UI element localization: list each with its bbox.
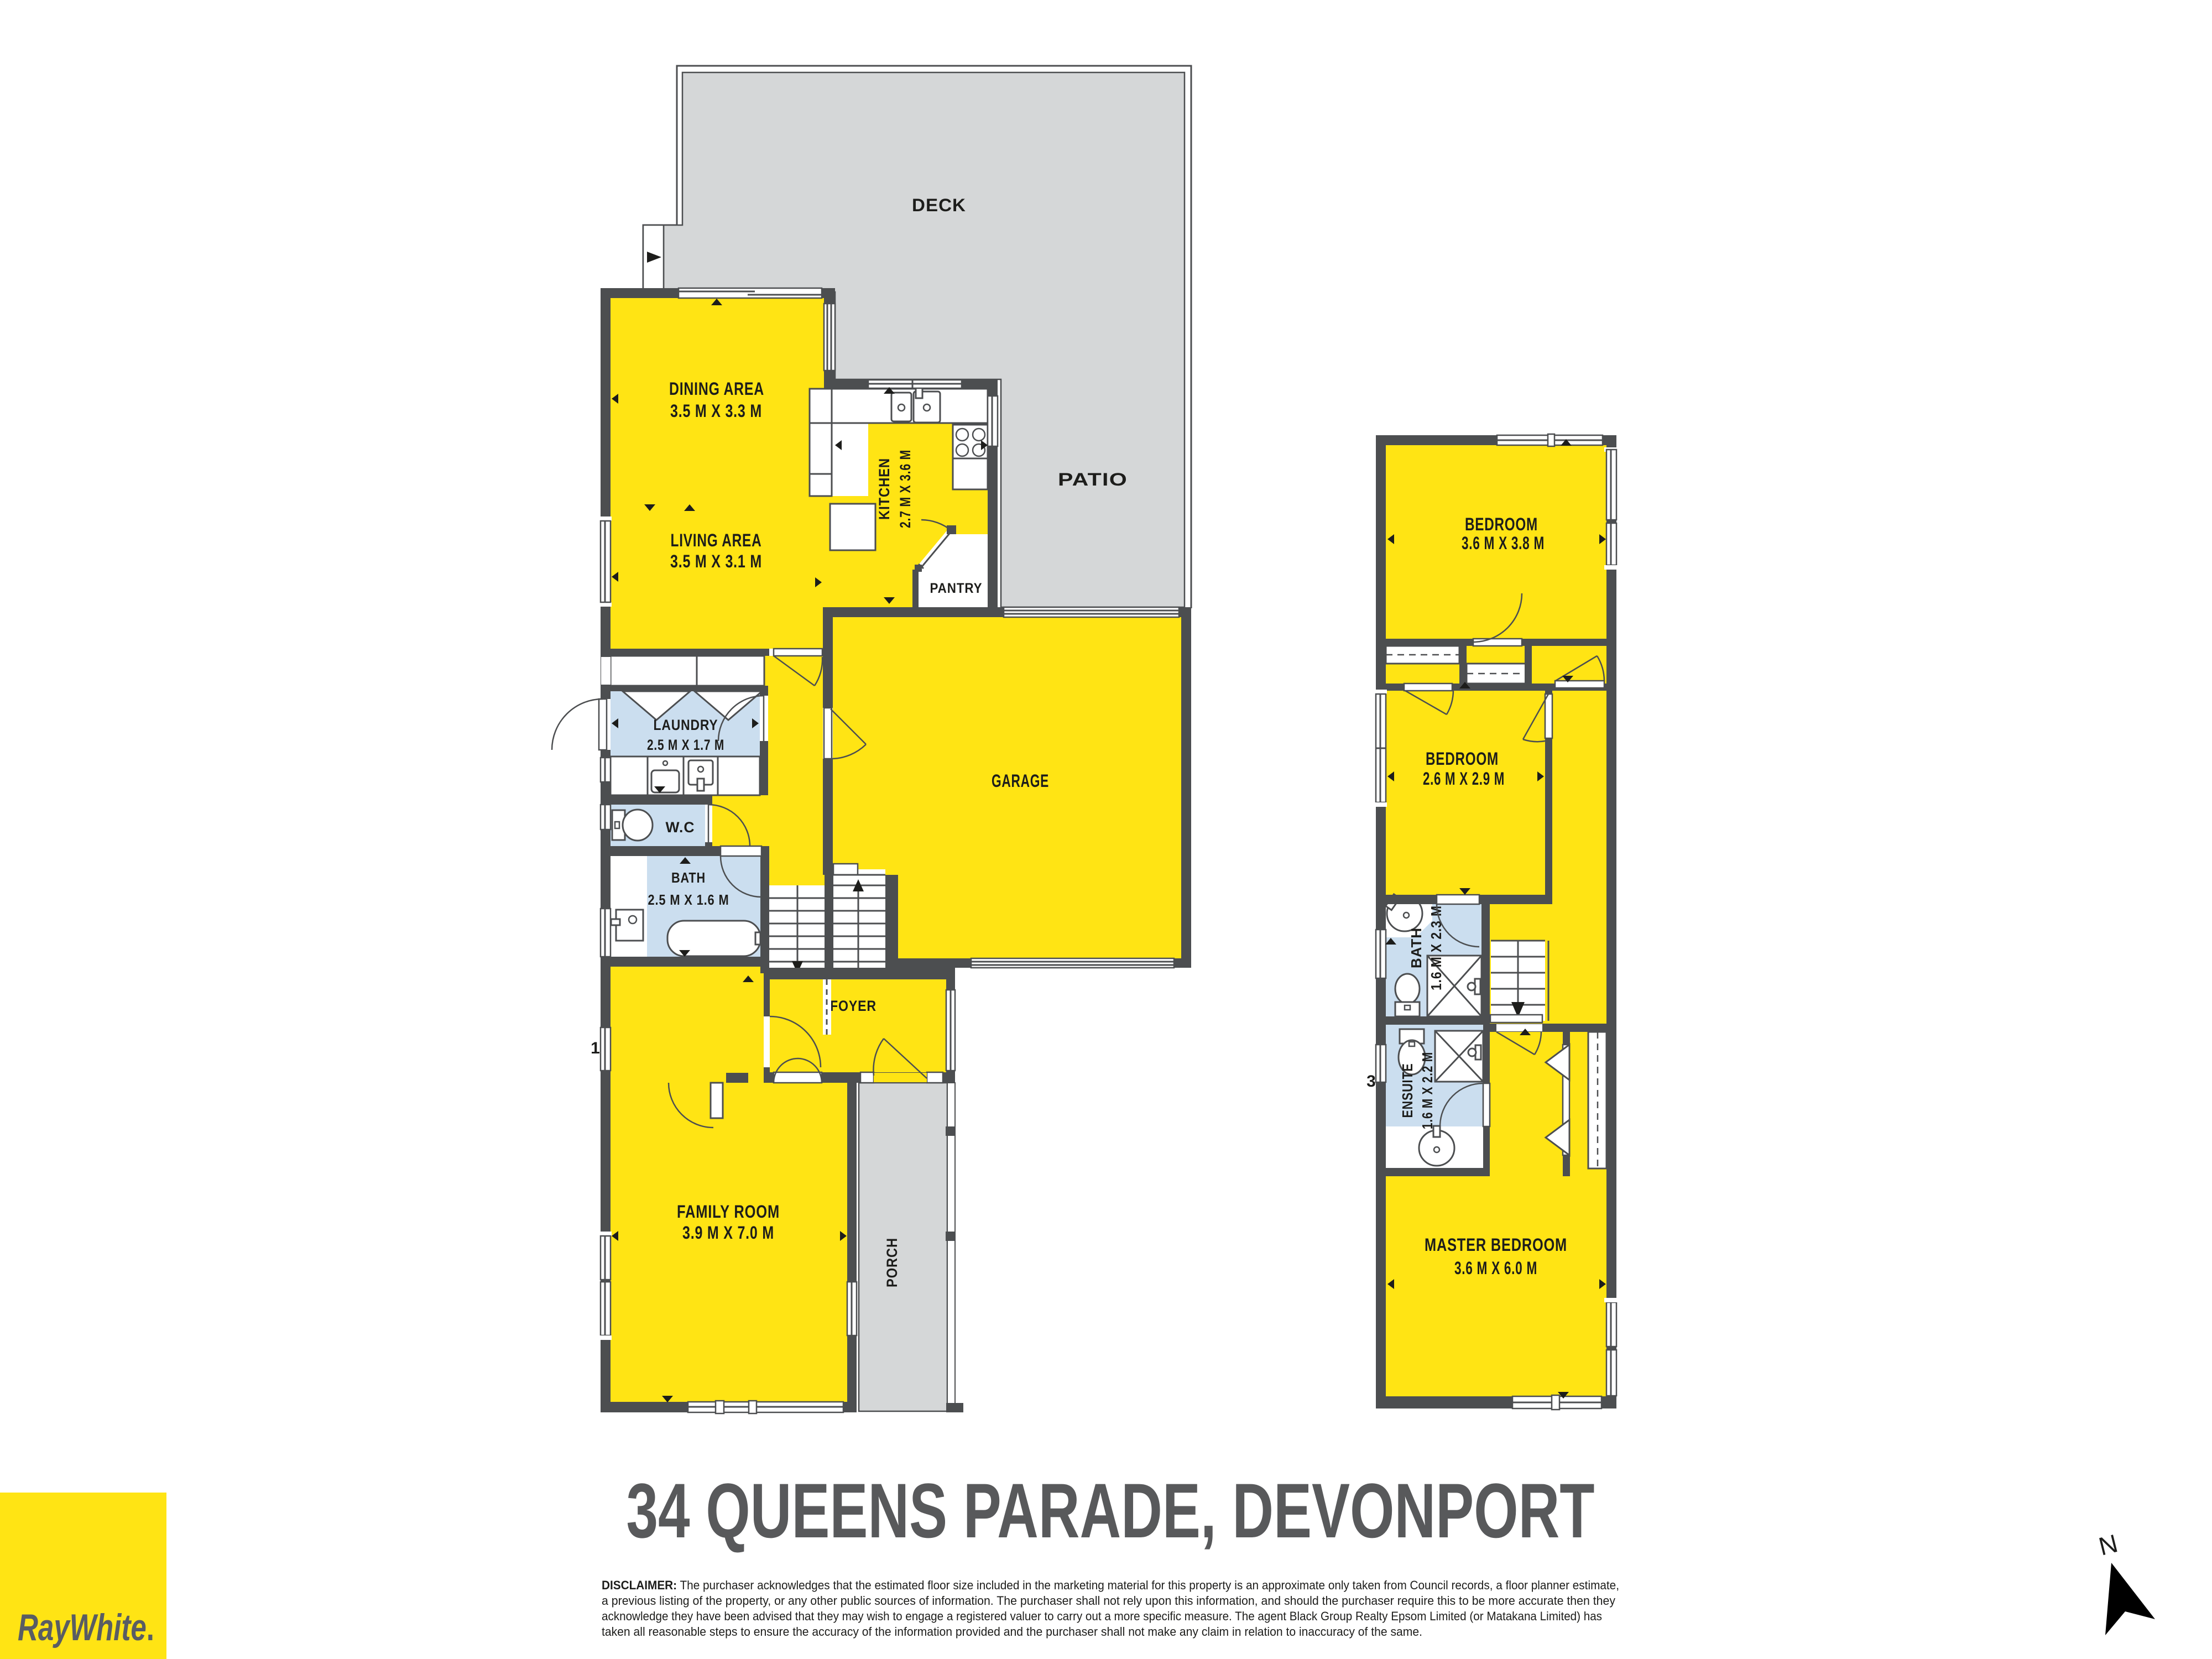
svg-text:GARAGE: GARAGE <box>992 771 1049 791</box>
svg-text:MASTER BEDROOM: MASTER BEDROOM <box>1425 1235 1567 1255</box>
svg-text:FAMILY ROOM: FAMILY ROOM <box>677 1202 780 1222</box>
svg-text:BEDROOM: BEDROOM <box>1426 749 1499 769</box>
svg-text:2.7 M X 3.6 M: 2.7 M X 3.6 M <box>897 450 914 528</box>
svg-text:KITCHEN: KITCHEN <box>876 458 893 520</box>
svg-text:3.5 M X 3.3 M: 3.5 M X 3.3 M <box>670 401 762 421</box>
svg-text:PANTRY: PANTRY <box>930 581 983 596</box>
svg-text:FOYER: FOYER <box>830 998 877 1014</box>
svg-text:3.6 M X 3.8 M: 3.6 M X 3.8 M <box>1462 533 1545 553</box>
svg-text:ENSUITE: ENSUITE <box>1399 1063 1416 1118</box>
svg-text:RayWhite.: RayWhite. <box>18 1606 154 1648</box>
svg-text:PATIO: PATIO <box>1058 469 1128 489</box>
svg-text:2.5 M X 1.7 M: 2.5 M X 1.7 M <box>647 737 724 753</box>
svg-text:2.5 M X 1.6 M: 2.5 M X 1.6 M <box>648 891 729 908</box>
svg-text:PORCH: PORCH <box>884 1238 900 1287</box>
svg-text:LIVING AREA: LIVING AREA <box>671 530 762 550</box>
svg-text:BATH: BATH <box>1408 927 1425 968</box>
svg-text:LAUNDRY: LAUNDRY <box>654 717 718 733</box>
svg-text:DISCLAIMER: The purchaser ackn: DISCLAIMER: The purchaser acknowledges t… <box>602 1578 1619 1592</box>
svg-text:DINING AREA: DINING AREA <box>669 379 764 399</box>
svg-text:1.6 M X 2.2 M: 1.6 M X 2.2 M <box>1419 1052 1436 1129</box>
svg-text:BEDROOM: BEDROOM <box>1465 514 1538 534</box>
svg-text:34 QUEENS PARADE, DEVONPORT: 34 QUEENS PARADE, DEVONPORT <box>627 1467 1595 1554</box>
svg-text:3.9 M X 7.0 M: 3.9 M X 7.0 M <box>682 1223 774 1243</box>
svg-text:BATH: BATH <box>671 869 706 886</box>
svg-text:1: 1 <box>591 1039 601 1057</box>
svg-text:1.6 M X 2.3 M: 1.6 M X 2.3 M <box>1428 905 1444 990</box>
svg-text:DECK: DECK <box>912 195 966 215</box>
svg-text:3.6 M X 6.0 M: 3.6 M X 6.0 M <box>1454 1258 1537 1278</box>
svg-text:W.C: W.C <box>666 819 695 836</box>
svg-text:3.5 M X 3.1 M: 3.5 M X 3.1 M <box>670 551 762 571</box>
svg-text:taken all reasonable steps to: taken all reasonable steps to ensure the… <box>602 1625 1422 1639</box>
svg-text:3: 3 <box>1366 1072 1376 1091</box>
svg-text:a previous listing of the prop: a previous listing of the property, or a… <box>602 1594 1616 1608</box>
svg-text:acknowledge they have been adv: acknowledge they have been advised that … <box>602 1609 1602 1623</box>
svg-text:2.6 M X 2.9 M: 2.6 M X 2.9 M <box>1423 769 1505 789</box>
